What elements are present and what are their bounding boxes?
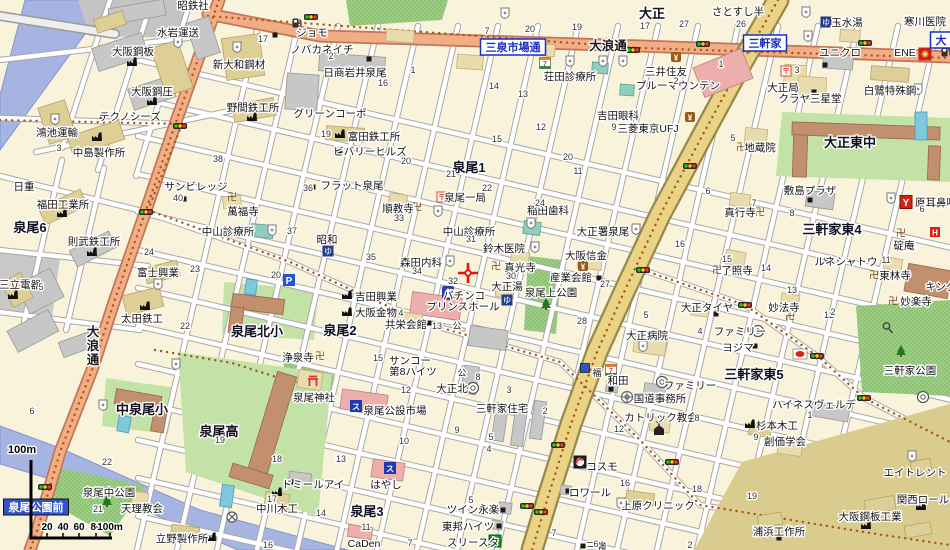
svg-text:三軒家東4: 三軒家東4: [802, 222, 862, 237]
temple-manji-icon: 卍: [755, 207, 765, 219]
block-number: 11: [573, 166, 582, 176]
svg-text:大正署泉尾: 大正署泉尾: [577, 225, 630, 238]
svg-text:2: 2: [687, 540, 692, 550]
svg-text:三軒家: 三軒家: [749, 36, 783, 50]
svg-text:フラット泉尾: フラット泉尾: [321, 179, 384, 192]
svg-text:三泉市場通: 三泉市場通: [486, 40, 541, 54]
svg-text:12: 12: [536, 122, 546, 132]
map-label: 富士興業: [137, 266, 179, 279]
map-label: 三立電器: [0, 278, 41, 291]
map-label: 創価学会: [764, 435, 806, 448]
block-number: 9: [753, 432, 758, 442]
seven-eleven-icon: 7: [540, 58, 551, 69]
svg-text:大阪信金: 大阪信金: [565, 249, 607, 262]
supermarket-icon: ス: [350, 400, 362, 412]
map-label: テクノシーズ: [99, 110, 161, 123]
restaurant-icon: [793, 349, 807, 359]
block-number: 5: [468, 495, 473, 505]
svg-text:27: 27: [600, 279, 610, 289]
svg-text:13: 13: [787, 285, 797, 295]
block-number: 14: [489, 81, 499, 91]
svg-text:泉尾北小: 泉尾北小: [231, 324, 283, 339]
svg-text:5: 5: [38, 282, 43, 292]
traffic-light-icon: [534, 509, 548, 515]
map-label: 上原クリニック: [621, 500, 695, 512]
svg-text:卍: 卍: [227, 192, 237, 204]
map-label: 産業会館: [550, 271, 592, 284]
svg-text:4: 4: [398, 308, 403, 318]
block-number: 1: [807, 410, 812, 420]
svg-text:泉尾神社: 泉尾神社: [293, 391, 335, 404]
map-label: 公: [457, 368, 466, 378]
svg-text:5: 5: [643, 310, 648, 320]
y-store-icon: Y: [900, 196, 912, 210]
block-number: 20: [401, 156, 411, 166]
svg-text:22: 22: [180, 321, 190, 331]
map-label: 水岩運送: [157, 26, 199, 39]
block-number: 7: [484, 26, 489, 36]
map-label: フラット泉尾: [321, 179, 384, 192]
school-pool: [117, 415, 132, 433]
svg-text:大正東中: 大正東中: [824, 135, 876, 150]
public-facility-icon: [233, 42, 241, 53]
school-pool: [220, 484, 235, 507]
block-number: 16: [263, 540, 273, 550]
public-facility-icon: [154, 279, 162, 290]
facility-square-icon: [581, 364, 590, 373]
svg-text:5: 5: [468, 495, 473, 505]
block-number: 14: [761, 263, 771, 273]
svg-text:27: 27: [679, 19, 689, 29]
svg-text:三井住友: 三井住友: [645, 65, 687, 78]
svg-text:CaDen: CaDen: [348, 538, 381, 550]
svg-text:敷島プラザ: 敷島プラザ: [784, 184, 837, 197]
street-name-label: 大浪通: [87, 324, 100, 367]
svg-text:40: 40: [57, 522, 69, 533]
public-facility-icon: [99, 400, 107, 411]
block-number: 16: [378, 78, 388, 88]
svg-text:20: 20: [271, 270, 281, 280]
svg-text:ユニクロ: ユニクロ: [819, 47, 861, 59]
svg-text:泉尾1: 泉尾1: [452, 160, 485, 175]
svg-text:富田鉄工所: 富田鉄工所: [348, 130, 401, 143]
public-facility-icon: [619, 56, 627, 67]
svg-text:ヨジマ: ヨジマ: [722, 342, 754, 354]
block-number: 17: [640, 21, 650, 31]
map-label: 中島製作所: [73, 146, 126, 159]
svg-text:19: 19: [321, 129, 331, 139]
block-number: 26: [736, 19, 746, 29]
district-label: 大正: [639, 6, 665, 21]
svg-text:公: 公: [452, 321, 461, 331]
map-label: カトリック教会: [624, 411, 698, 424]
svg-text:¥: ¥: [674, 53, 679, 62]
svg-text:13: 13: [432, 321, 442, 331]
svg-text:卍: 卍: [315, 351, 325, 363]
block-number: 17: [258, 34, 268, 44]
building: [871, 66, 910, 83]
svg-text:100m: 100m: [8, 444, 36, 456]
svg-text:11: 11: [361, 522, 370, 532]
svg-text:中山診療所: 中山診療所: [202, 225, 255, 238]
svg-text:¥: ¥: [688, 113, 693, 122]
school-pool: [915, 112, 927, 140]
svg-text:泉尾中公園: 泉尾中公園: [83, 486, 136, 499]
svg-text:カトリック教会: カトリック教会: [624, 411, 698, 424]
svg-text:則武鉄工所: 則武鉄工所: [68, 235, 121, 248]
svg-text:15: 15: [492, 134, 502, 144]
svg-text:19: 19: [572, 22, 582, 32]
eneos-gas-icon: [919, 48, 932, 61]
map-label: 妙楽寺: [900, 295, 932, 308]
block-number: 19: [215, 435, 225, 445]
svg-text:コスモ: コスモ: [586, 461, 618, 473]
svg-text:1: 1: [807, 410, 812, 420]
road-name-badge: 三軒家: [744, 35, 787, 51]
svg-text:日重: 日重: [14, 180, 35, 193]
block-number: 31: [466, 234, 476, 244]
map-label: スリースタ: [447, 537, 499, 549]
svg-text:卍: 卍: [888, 296, 898, 308]
svg-text:ENE: ENE: [894, 47, 916, 59]
block-number: 30: [506, 271, 516, 281]
svg-text:浄泉寺: 浄泉寺: [282, 351, 314, 364]
map-label: ノバカネイチ: [291, 44, 354, 56]
block-number: 3: [506, 385, 511, 395]
district-label: 泉尾3: [350, 504, 383, 519]
svg-text:グリーンコーポ: グリーンコーポ: [294, 107, 367, 120]
block-number: 10: [399, 436, 409, 446]
block-number: 37: [287, 226, 297, 236]
block-number: 8: [789, 208, 794, 218]
svg-text:泉尾2: 泉尾2: [323, 323, 356, 338]
svg-text:泉尾一局: 泉尾一局: [444, 191, 486, 204]
traffic-light-icon: [551, 442, 565, 448]
map-label: ロワール: [569, 487, 611, 499]
svg-text:6: 6: [705, 186, 710, 196]
map-label: 寒川医院: [904, 15, 946, 28]
svg-text:11: 11: [881, 255, 890, 265]
block-number: 12: [401, 385, 411, 395]
block-number: 40: [173, 193, 183, 203]
svg-text:9: 9: [611, 122, 616, 132]
svg-text:はやし: はやし: [370, 479, 402, 491]
block-number: 20: [525, 24, 535, 34]
map-label: ルネシャトウ: [815, 256, 878, 268]
svg-text:三軒家公園: 三軒家公園: [884, 364, 937, 377]
public-facility-icon: [566, 56, 574, 67]
block-number: 1: [718, 59, 723, 69]
public-facility-icon: [268, 225, 276, 236]
map-label: 泉尾公設市場: [364, 404, 427, 417]
svg-text:40: 40: [173, 193, 183, 203]
block-number: 13: [432, 321, 442, 331]
svg-text:卍: 卍: [755, 207, 765, 219]
map-label: 大正タイヤ: [681, 301, 733, 314]
block-number: 6: [705, 186, 710, 196]
svg-text:14: 14: [489, 81, 499, 91]
public-facility-icon: [172, 359, 180, 370]
block-number: 5: [643, 310, 648, 320]
svg-text:7: 7: [551, 528, 556, 538]
map-label: ファミリー: [714, 326, 767, 338]
map-label: 立野製作所: [156, 532, 209, 545]
svg-text:三立電器: 三立電器: [0, 278, 41, 291]
block-number: 6: [29, 406, 34, 416]
svg-text:12: 12: [401, 385, 411, 395]
svg-text:立野製作所: 立野製作所: [156, 532, 209, 545]
svg-text:7: 7: [484, 26, 489, 36]
svg-text:白鷺特殊鋼: 白鷺特殊鋼: [864, 84, 917, 97]
svg-text:三軒家東5: 三軒家東5: [724, 367, 783, 382]
block-number: 22: [482, 183, 492, 193]
svg-text:ドミールアイ: ドミールアイ: [282, 479, 344, 491]
svg-text:19: 19: [215, 435, 225, 445]
svg-text:スリースタ: スリースタ: [447, 537, 499, 549]
traffic-light-icon: [304, 14, 318, 20]
block-number: 2: [328, 51, 333, 61]
building-marker-icon: [823, 63, 828, 68]
block-number: 12: [536, 122, 546, 132]
map-label: 東林寺: [879, 269, 911, 282]
block-number: 11: [881, 255, 890, 265]
map-label: 妙法寺: [768, 301, 800, 314]
map-label: 泉尾神社: [293, 391, 335, 404]
district-label: 泉尾1: [452, 160, 485, 175]
map-label: 玉水湯: [831, 17, 863, 29]
svg-text:杉本木工: 杉本木工: [756, 419, 798, 432]
map-label: クラヤ三星堂: [779, 93, 842, 105]
map-label: ENE: [894, 47, 916, 59]
svg-text:16: 16: [675, 239, 685, 249]
svg-text:ファミリー: ファミリー: [664, 380, 717, 392]
building: [927, 146, 940, 180]
block-number: 17: [267, 494, 277, 504]
public-facility-icon: [639, 341, 647, 352]
map-label: 了照寺: [721, 265, 753, 277]
svg-text:和田: 和田: [608, 375, 629, 387]
map-label: 白鷺特殊鋼: [864, 84, 917, 97]
block-number: 16: [675, 239, 685, 249]
block-number: 13: [518, 89, 528, 99]
block-number: 28: [577, 316, 587, 326]
svg-text:7: 7: [751, 198, 756, 208]
map-label: ファミリー: [664, 380, 717, 392]
svg-text:大阪鋼板: 大阪鋼板: [112, 45, 154, 58]
svg-text:14: 14: [761, 263, 771, 273]
district-label: 三軒家東5: [724, 367, 783, 382]
map-label: 東邦ハイツ: [442, 520, 494, 533]
map-label: キング: [925, 280, 950, 293]
district-label: 泉尾2: [323, 323, 356, 338]
svg-text:7: 7: [543, 61, 547, 68]
traffic-light-icon: [139, 209, 153, 215]
block-number: 14: [316, 508, 326, 518]
svg-text:テクノシーズ: テクノシーズ: [99, 110, 161, 123]
svg-text:20: 20: [41, 522, 53, 533]
svg-text:13: 13: [336, 454, 346, 464]
building-marker-icon: [501, 508, 506, 513]
temple-manji-icon: 卍: [227, 192, 237, 204]
traffic-light-icon: [520, 503, 534, 509]
svg-text:水岩運送: 水岩運送: [157, 26, 199, 39]
svg-text:〒: 〒: [782, 67, 790, 76]
block-number: 11: [361, 522, 370, 532]
map-label: 杉本木工: [756, 419, 798, 432]
public-facility-icon: [501, 8, 509, 19]
map-label: 浄泉寺: [282, 351, 314, 364]
traffic-light-icon: [38, 484, 52, 490]
svg-text:浦浜工作所: 浦浜工作所: [753, 525, 806, 538]
svg-text:泉尾上公園: 泉尾上公園: [525, 286, 578, 299]
government-office-icon: [622, 392, 633, 403]
svg-text:34: 34: [412, 266, 422, 276]
svg-text:妙楽寺: 妙楽寺: [900, 295, 932, 308]
map-label: 大正署泉尾: [577, 225, 630, 238]
bank-icon: ¥: [685, 112, 695, 122]
svg-text:17: 17: [258, 34, 268, 44]
block-number: 21: [93, 504, 103, 514]
hotel-icon: H: [930, 227, 940, 237]
public-facility-icon: [804, 31, 812, 42]
map-label: 大阪鋼板工業: [839, 510, 902, 523]
map-label: サンビレッジ: [165, 181, 228, 193]
block-number: 27: [679, 19, 689, 29]
building-marker-icon: [367, 57, 372, 62]
svg-text:2: 2: [830, 307, 835, 317]
traffic-light-icon: [665, 459, 679, 465]
svg-text:32: 32: [448, 276, 458, 286]
map-label: 大阪鋼板: [112, 45, 154, 58]
block-number: 9: [611, 122, 616, 132]
parking-icon: P: [283, 274, 295, 287]
school-pool: [245, 279, 258, 295]
svg-text:公: 公: [457, 368, 466, 378]
traffic-light-icon: [857, 395, 871, 401]
traffic-light-icon: [696, 41, 710, 47]
svg-text:33: 33: [394, 213, 404, 223]
block-number: 24: [144, 247, 154, 257]
svg-text:三菱東京UFJ: 三菱東京UFJ: [617, 122, 678, 135]
svg-text:中島製作所: 中島製作所: [73, 146, 126, 159]
map-label: 太田鉄工: [121, 312, 163, 325]
map-label: 大正病院: [626, 329, 668, 342]
building-marker-icon: [497, 524, 502, 529]
svg-text:8: 8: [694, 413, 699, 423]
map-label: 浦浜工作所: [753, 525, 806, 538]
bus-stop-badge: 泉尾公園前: [4, 499, 69, 515]
temple-manji-icon: 卍: [491, 261, 501, 273]
svg-text:吉田興業: 吉田興業: [355, 290, 397, 303]
svg-text:クラヤ三星堂: クラヤ三星堂: [779, 93, 842, 105]
svg-text:妙法寺: 妙法寺: [768, 301, 800, 314]
svg-text:鴻池運輸: 鴻池運輸: [36, 126, 78, 139]
district-label: 三軒家東4: [802, 222, 862, 237]
block-number: 12: [614, 424, 624, 434]
svg-text:6: 6: [919, 204, 924, 214]
svg-text:泉尾6: 泉尾6: [13, 220, 46, 235]
svg-text:ファミリー: ファミリー: [714, 326, 767, 338]
svg-text:22: 22: [482, 183, 492, 193]
public-facility-icon: [632, 224, 640, 235]
block-number: 1: [410, 65, 415, 75]
bathhouse-icon: ゆ: [502, 295, 513, 306]
block-number: 35: [366, 252, 376, 262]
map-label: 地蔵院: [744, 141, 776, 154]
svg-text:泉尾3: 泉尾3: [350, 504, 383, 519]
map-label: 三菱東京UFJ: [617, 122, 678, 135]
block-number: 3: [56, 143, 61, 153]
svg-text:16: 16: [620, 478, 630, 488]
svg-text:7: 7: [407, 538, 412, 548]
temple-manji-icon: 卍: [888, 296, 898, 308]
map-label: 碇庵: [894, 239, 915, 252]
svg-text:創価学会: 創価学会: [764, 435, 806, 448]
map-label: さとすし半: [712, 5, 764, 18]
svg-text:2: 2: [673, 76, 678, 86]
block-number: 24: [535, 198, 545, 208]
map-label: 則武鉄工所: [68, 235, 121, 248]
svg-text:上原クリニック: 上原クリニック: [621, 500, 695, 512]
svg-text:Y: Y: [903, 198, 910, 209]
block-number: 4: [486, 444, 491, 454]
block-number: 7: [551, 528, 556, 538]
svg-text:野間鉄工所: 野間鉄工所: [227, 101, 280, 114]
block-number: 15: [492, 134, 502, 144]
svg-text:東林寺: 東林寺: [879, 269, 911, 282]
map-label: 三軒家公園: [884, 364, 937, 377]
temple-manji-icon: 卍: [315, 351, 325, 363]
map-label: 泉尾中公園: [83, 486, 136, 499]
public-facility-icon: [887, 193, 895, 204]
map-label: ジョモ: [296, 27, 328, 39]
map-label: 国道事務所: [634, 392, 687, 405]
map-svg[interactable]: 77ゆゆゆ〒〒卍卍卍卍卍卍卍卍卍卍卍¥¥¥PYH99スス昭鉄社水岩運送大阪鋼板大…: [0, 0, 950, 550]
svg-text:24: 24: [535, 198, 545, 208]
map-label: 昭和: [317, 234, 338, 246]
svg-text:7: 7: [609, 368, 613, 375]
district-label: 泉尾6: [13, 220, 46, 235]
svg-text:11: 11: [573, 166, 582, 176]
map-label: 昭鉄社: [177, 0, 209, 12]
block-number: 8: [475, 372, 480, 382]
svg-text:国道事務所: 国道事務所: [634, 392, 687, 405]
building-marker-icon: [609, 387, 614, 392]
svg-text:1: 1: [410, 65, 415, 75]
map-canvas[interactable]: 77ゆゆゆ〒〒卍卍卍卍卍卍卍卍卍卍卍¥¥¥PYH99スス昭鉄社水岩運送大阪鋼板大…: [0, 0, 950, 550]
block-number: 6: [593, 539, 598, 549]
svg-text:寒川医院: 寒川医院: [904, 15, 946, 28]
svg-text:P: P: [286, 276, 293, 287]
facility-circle-icon: [468, 383, 479, 394]
map-label: 中山診療所: [202, 225, 255, 238]
map-label: エイトレント: [884, 467, 947, 479]
public-facility-icon: [434, 206, 442, 217]
map-label: CaDen: [348, 538, 381, 550]
district-label: 大正東中: [824, 135, 876, 150]
svg-text:稲田歯科: 稲田歯科: [527, 204, 569, 217]
map-label: 野間鉄工所: [227, 101, 280, 114]
block-number: 2: [687, 540, 692, 550]
building-marker-icon: [427, 321, 432, 326]
traffic-light-icon: [858, 40, 872, 46]
block-number: 5: [38, 282, 43, 292]
svg-text:13: 13: [518, 89, 528, 99]
bank-icon: ¥: [578, 261, 588, 271]
svg-text:6: 6: [29, 406, 34, 416]
traffic-light-icon: [738, 302, 752, 308]
svg-text:30: 30: [506, 271, 516, 281]
